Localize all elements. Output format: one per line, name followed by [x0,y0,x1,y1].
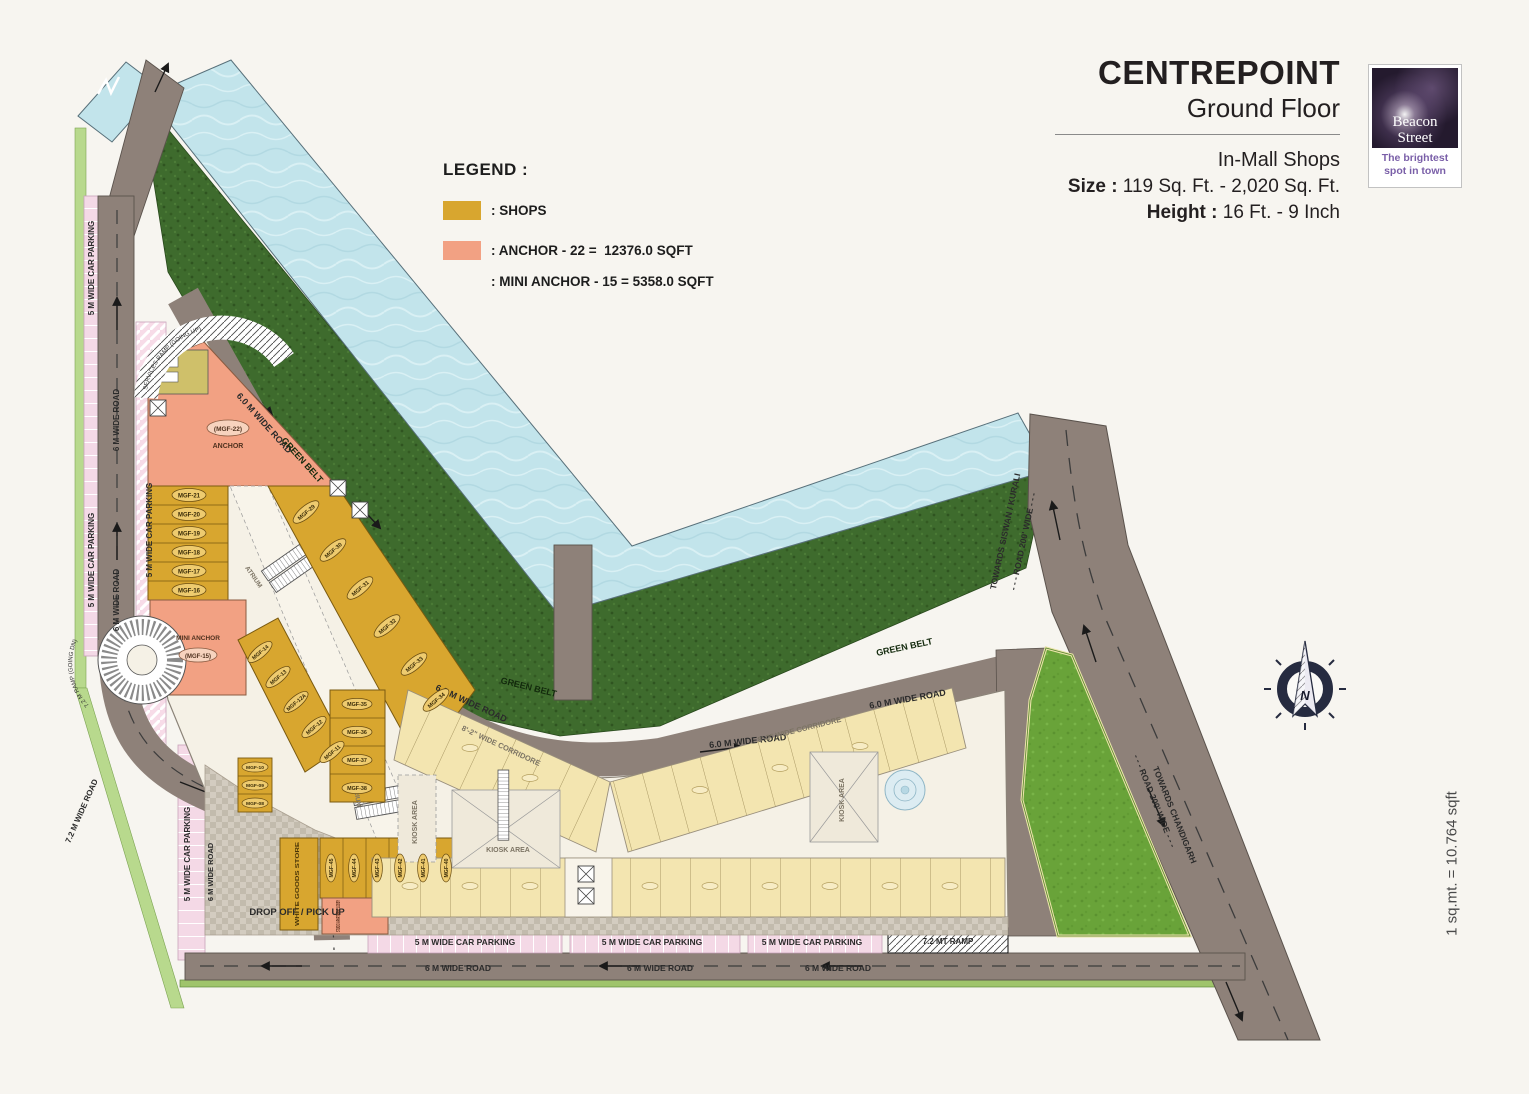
svg-text:MGF-19: MGF-19 [178,532,201,538]
label-parking: 5 M WIDE CAR PARKING [602,937,703,947]
label-parking: 5 M WIDE CAR PARKING [87,513,96,608]
title-divider [1055,134,1340,135]
svg-text:MGF-37: MGF-37 [347,758,367,764]
svg-text:MGF-40: MGF-40 [444,858,450,877]
svg-text:MGF-44: MGF-44 [352,858,358,877]
label-ramp: 7.2 MT RAMP [923,937,974,946]
logo-photo: Beacon Street [1372,68,1458,148]
svg-text:MGF-18: MGF-18 [178,551,201,557]
scale-note: 1 sq.mt. = 10.764 sqft [1444,764,1461,964]
legend-heading: LEGEND : [443,160,714,180]
shops-label: : SHOPS [491,203,547,218]
legend-row-mini-anchor: : MINI ANCHOR - 15 = 5358.0 SQFT [491,274,714,289]
mini-anchor-id: (MGF-15) [185,654,211,660]
svg-text:MGF-09: MGF-09 [246,783,264,789]
studio-lobby-label: STUDIO APARTMENT LOBBY [336,900,342,932]
svg-text:MGF-21: MGF-21 [178,494,201,500]
label-kiosk: KIOSK AREA [839,778,846,822]
water-pier [554,545,592,700]
label-road: 6 M WIDE ROAD [425,963,491,973]
height-line: Height : 16 Ft. - 9 Inch [1055,202,1340,224]
title-block: CENTREPOINT Ground Floor In-Mall Shops S… [1055,55,1340,224]
compass-rose: N [1264,641,1346,730]
mini-anchor-label: : MINI ANCHOR - 15 = 5358.0 SQFT [491,274,714,289]
page-title: CENTREPOINT [1055,55,1340,91]
page-subtitle: Ground Floor [1055,93,1340,124]
label-parking: 5 M WIDE CAR PARKING [762,937,863,947]
label-road: 7.2 M WIDE ROAD [64,777,100,844]
label-parking: 5 M WIDE CAR PARKING [145,483,154,578]
label-road: 6 M WIDE ROAD [206,842,215,901]
site-plan-page: N 5 M WIDE CAR PARKING 5 M WIDE CAR PARK… [0,0,1529,1094]
svg-text:MGF-41: MGF-41 [421,858,427,877]
svg-text:MGF-42: MGF-42 [398,858,404,877]
legend: LEGEND : : SHOPS : ANCHOR - 22 = 12376.0… [443,160,714,289]
label-road: 6 M WIDE ROAD [112,389,121,451]
svg-text:MGF-45: MGF-45 [329,858,335,877]
label-road: 6 M WIDE ROAD [627,963,693,973]
label-road: 6 M WIDE ROAD [805,963,871,973]
legend-row-anchor: : ANCHOR - 22 = 12376.0 SQFT [443,241,714,260]
anchor-id: (MGF-22) [214,426,242,433]
label-green-belt: GREEN BELT [875,636,934,658]
svg-text:MGF-08: MGF-08 [246,801,264,807]
svg-text:MGF-43: MGF-43 [375,858,381,877]
legend-row-shops: : SHOPS [443,201,714,220]
svg-text:MGF-35: MGF-35 [347,702,367,708]
anchor-label: ANCHOR [213,443,244,450]
anchor-label: : ANCHOR - 22 = 12376.0 SQFT [491,243,693,258]
white-goods-label: WHITE GOODS STORE [295,841,301,926]
label-parking: 5 M WIDE CAR PARKING [183,807,192,902]
label-parking: 5 M WIDE CAR PARKING [87,221,96,316]
compass-north-label: N [1300,688,1310,703]
logo-brand-name: Beacon Street [1372,115,1458,146]
svg-text:MGF-17: MGF-17 [178,570,201,576]
svg-text:MGF-38: MGF-38 [347,786,367,792]
label-road: 6 M WIDE ROAD [112,569,121,631]
beacon-street-logo: Beacon Street The brightest spot in town [1368,64,1462,188]
label-parking: 5 M WIDE CAR PARKING [415,937,516,947]
logo-tagline: The brightest spot in town [1372,152,1458,177]
label-kiosk: KIOSK AREA [412,800,419,844]
shops-swatch [443,201,481,220]
label-kiosk: KIOSK AREA [486,847,530,854]
anchor-swatch [443,241,481,260]
svg-text:MGF-36: MGF-36 [347,730,367,736]
svg-text:MGF-10: MGF-10 [246,765,264,771]
svg-text:MGF-20: MGF-20 [178,513,201,519]
size-line: Size : 119 Sq. Ft. - 2,020 Sq. Ft. [1055,176,1340,198]
shops-category: In-Mall Shops [1055,149,1340,172]
lower-left-units: MGF-10 MGF-09 MGF-08 [242,762,268,808]
mini-anchor-label: MINI ANCHOR [176,635,220,642]
svg-text:MGF-16: MGF-16 [178,589,201,595]
